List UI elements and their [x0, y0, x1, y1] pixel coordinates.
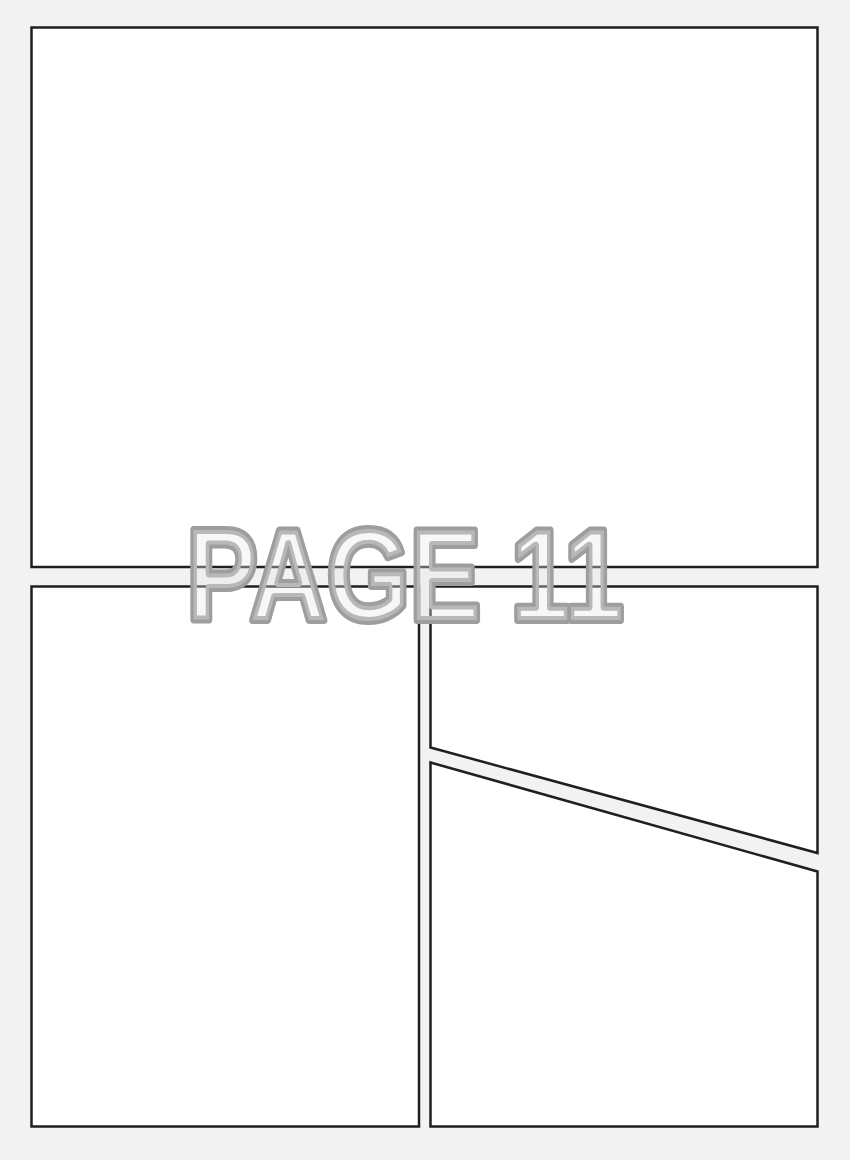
page-title: PAGE 11 — [187, 502, 624, 648]
panel-bottom-left — [32, 587, 420, 1127]
panel-top — [32, 28, 818, 568]
comic-page-template: PAGE 11 — [0, 0, 850, 1160]
comic-page-svg: PAGE 11 — [0, 0, 850, 1160]
